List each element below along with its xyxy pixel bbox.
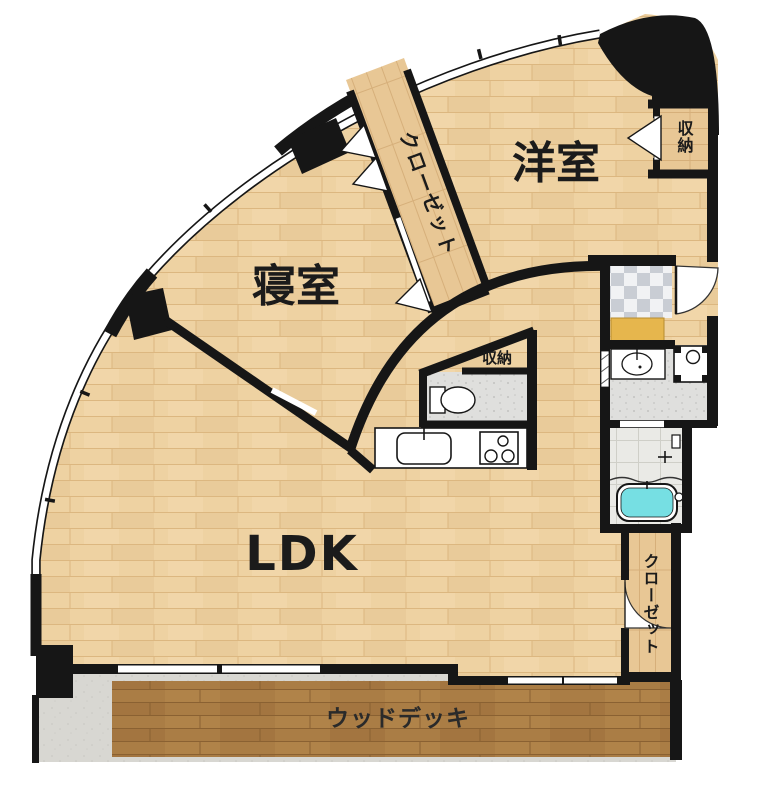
entrance-tile-floor: [610, 266, 672, 318]
wall-pier: [36, 645, 73, 698]
floor-plan-page: 洋室 寝室 LDK ウッドデッキ クローゼット 収納 収納 クローゼット: [0, 0, 758, 800]
label-storage-hall: 収納: [482, 349, 512, 367]
room-label-wood-deck: ウッドデッキ: [326, 705, 470, 732]
toilet-icon: [430, 387, 475, 413]
washing-machine-pan: [674, 346, 709, 382]
floor-plan-canvas: 洋室 寝室 LDK ウッドデッキ クローゼット 収納 収納 クローゼット: [0, 0, 758, 800]
deck-side-wall: [670, 680, 682, 760]
label-closet-bottom-right: クローゼット: [641, 553, 660, 655]
entrance-mat: [611, 318, 664, 342]
washroom: [610, 345, 709, 424]
label-storage-western: 収納: [675, 120, 694, 154]
kitchen: [375, 428, 527, 468]
room-label-bedroom: 寝室: [252, 261, 340, 312]
room-label-ldk: LDK: [245, 526, 359, 582]
room-label-western: 洋室: [512, 138, 600, 189]
bathroom: [610, 428, 683, 528]
balcony-side-wall: [32, 695, 39, 763]
washroom-sliding-door: [601, 351, 609, 387]
